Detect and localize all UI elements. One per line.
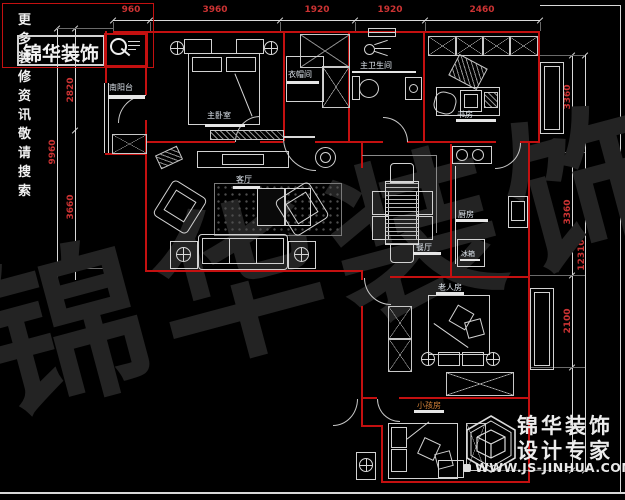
shower-spray — [374, 51, 388, 56]
deco-item — [155, 146, 183, 170]
magnifier-box — [104, 33, 148, 67]
study-cabinet — [509, 36, 538, 56]
wall — [407, 141, 496, 143]
nightstand — [462, 352, 484, 366]
wall-elder-top — [390, 276, 530, 278]
utility-door-arc — [333, 399, 358, 426]
pillow — [192, 57, 222, 72]
doc-line-icon — [128, 45, 140, 46]
room-label-master-bedroom: 主卧室 — [207, 112, 231, 120]
burner-icon — [456, 149, 468, 161]
wall — [361, 397, 377, 399]
table-lamp-icon — [176, 247, 191, 262]
brand-box: 锦华装饰 — [17, 35, 105, 66]
wall — [361, 306, 363, 427]
counter-line — [455, 166, 456, 264]
room-label-dining: 餐厅 — [416, 244, 432, 252]
room-label-master-bath: 主卫生间 — [360, 62, 392, 70]
wall-top — [113, 31, 540, 33]
shower-spray — [374, 40, 388, 45]
label-underline — [287, 81, 319, 84]
nightstand — [438, 352, 460, 366]
bath-door-arc — [383, 117, 408, 142]
beam-line — [436, 155, 437, 233]
dining-chair — [390, 163, 414, 183]
plant-inner — [320, 152, 331, 163]
kids-door-arc — [377, 399, 400, 422]
doc-line-icon — [128, 49, 136, 50]
kitchen-door-arc — [495, 143, 521, 169]
toilet-icon — [359, 79, 379, 98]
doc-line-icon — [128, 41, 140, 42]
wall — [423, 31, 425, 141]
label-underline — [460, 259, 480, 261]
room-label-elder: 老人房 — [438, 284, 462, 292]
room-label-kitchen: 厨房 — [458, 211, 474, 219]
window-top — [368, 28, 396, 37]
floorplan-canvas: 锦华装饰 更多装修资讯敬请搜索 锦华装饰 960 3960 1920 1920 … — [0, 0, 625, 500]
wall-kids-bottom — [381, 481, 530, 483]
desk-item — [484, 92, 498, 108]
wall-living-left — [145, 141, 147, 272]
url-bullet-icon — [463, 464, 471, 472]
kitchen-sink-basin — [511, 201, 525, 221]
label-underline — [414, 410, 444, 413]
label-underline — [413, 252, 441, 255]
dining-chair — [390, 243, 414, 263]
balcony-cabinet — [112, 134, 147, 154]
label-underline — [233, 186, 260, 189]
wall — [260, 141, 283, 143]
study-cabinet — [428, 36, 457, 56]
wall — [361, 270, 363, 280]
room-label-study: 书房 — [457, 111, 473, 119]
label-underline — [456, 219, 488, 222]
pillow — [226, 57, 256, 72]
ceiling-lamp-icon — [421, 352, 435, 366]
ceiling-lamp-icon — [264, 41, 278, 55]
sofa-cushion — [202, 238, 230, 264]
balcony-window — [108, 83, 109, 153]
room-label-kids: 小孩房 — [417, 402, 441, 410]
footer-url: WWW.JS-JINHUA.COM — [475, 460, 625, 475]
entry-door-leaf — [283, 136, 315, 138]
ceiling-lamp-icon — [170, 41, 184, 55]
sofa-cushion — [256, 238, 284, 264]
label-underline — [108, 95, 145, 99]
wall — [145, 141, 235, 143]
wardrobe — [322, 66, 350, 108]
wall-kids-top — [399, 397, 530, 399]
bed-bench — [210, 130, 284, 140]
window-seat — [446, 372, 514, 396]
room-label-balcony: 南阳台 — [109, 84, 133, 92]
wall — [283, 31, 285, 141]
label-underline — [352, 71, 416, 73]
elder-door-arc — [364, 278, 391, 305]
balcony-window — [104, 83, 105, 153]
room-label-cloakroom: 衣帽间 — [288, 71, 312, 79]
monitor-screen — [464, 94, 478, 108]
wall — [315, 141, 383, 143]
nightstand — [184, 39, 212, 54]
tv-set — [222, 154, 264, 165]
bay-window-inner — [534, 292, 550, 366]
table-lamp-icon — [294, 247, 309, 262]
study-cabinet — [482, 36, 511, 56]
wall-living-bottom — [145, 270, 363, 272]
fridge-label: 冰箱 — [461, 250, 475, 258]
label-underline — [205, 124, 245, 127]
balcony-door-arc — [118, 95, 146, 123]
wall — [381, 427, 383, 483]
beam-line — [362, 155, 436, 156]
bay-window-inner — [544, 66, 560, 130]
bed-cabinet — [391, 449, 407, 472]
sink-drain — [409, 84, 418, 93]
study-chest — [448, 54, 488, 90]
wardrobe — [388, 338, 412, 372]
dining-table — [385, 181, 419, 245]
label-underline — [456, 119, 496, 122]
burner-icon — [472, 149, 484, 161]
cloakroom-area — [286, 56, 324, 102]
brand-text: 锦华装饰 — [23, 39, 99, 66]
drain-icon — [359, 458, 373, 472]
nightstand — [236, 39, 264, 54]
shower-spray — [375, 48, 391, 49]
ceiling-lamp-icon — [486, 352, 500, 366]
room-label-living: 客厅 — [236, 176, 252, 184]
sofa-cushion — [229, 238, 257, 264]
wall-jog — [361, 425, 383, 427]
bed-cabinet — [391, 427, 407, 448]
wall — [520, 141, 540, 143]
wardrobe — [388, 306, 412, 340]
shower-icon — [364, 44, 375, 55]
